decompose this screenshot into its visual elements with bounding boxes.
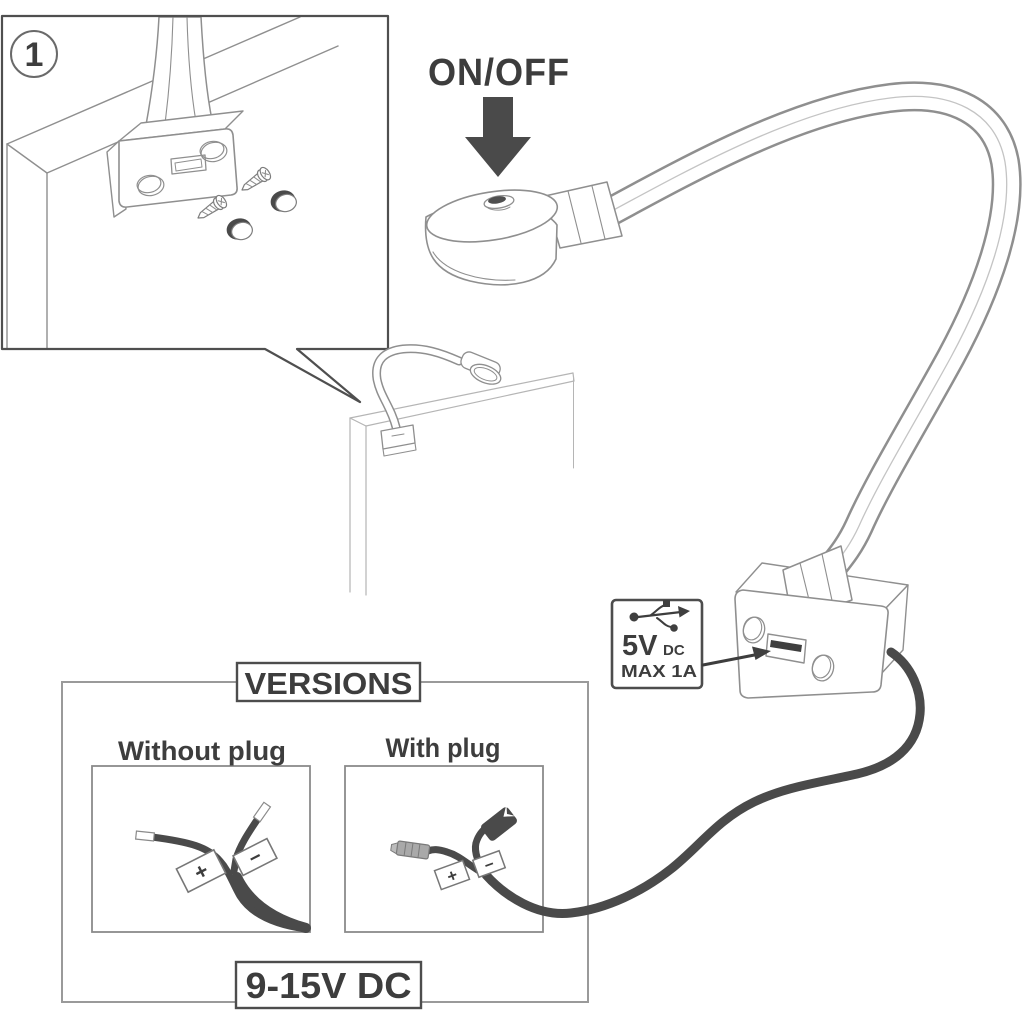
voltage-label: 5V: [622, 630, 658, 662]
instruction-diagram: 1 ON/OFF: [0, 0, 1024, 1024]
dc-wires-plug: + −: [390, 804, 519, 890]
gooseneck-arm: [610, 96, 1007, 574]
mounting-screw-icon: [238, 166, 273, 196]
spade-terminal: [390, 840, 430, 859]
voltage-unit-label: DC: [663, 642, 685, 659]
instruction-sheet: 1 ON/OFF: [0, 0, 1024, 1024]
step-number: 1: [25, 36, 44, 74]
flat-arm-inset: [146, 17, 212, 125]
dc-plug: [479, 804, 520, 842]
press-arrow-icon: [465, 97, 531, 177]
mount-base: [735, 590, 888, 698]
with-plug-label: With plug: [386, 733, 501, 763]
bare-wire-tip: [254, 802, 271, 821]
mounting-detail-inset: 1: [2, 16, 388, 402]
max-current-label: MAX 1A: [621, 661, 697, 681]
versions-title-box: VERSIONS: [237, 663, 420, 701]
screw-cap-icon: [224, 216, 254, 243]
screw-cap-icon: [268, 188, 298, 215]
lamp-head: [423, 182, 622, 285]
positive-tag: +: [434, 860, 469, 890]
voltage-range-box: 9-15V DC: [236, 962, 421, 1008]
voltage-range-label: 9-15V DC: [246, 965, 412, 1006]
step-number-badge: 1: [11, 31, 57, 77]
without-plug-label: Without plug: [118, 736, 286, 766]
versions-title: VERSIONS: [245, 666, 413, 701]
bare-wire-tip: [136, 831, 155, 841]
lamp-head-mini: [456, 350, 506, 388]
versions-outline: [62, 682, 588, 1002]
on-off-label: ON/OFF: [428, 52, 570, 94]
mount-base-mini: [381, 425, 416, 456]
installed-lamp-preview: [350, 349, 574, 595]
dc-wires-bare: + −: [136, 802, 306, 929]
